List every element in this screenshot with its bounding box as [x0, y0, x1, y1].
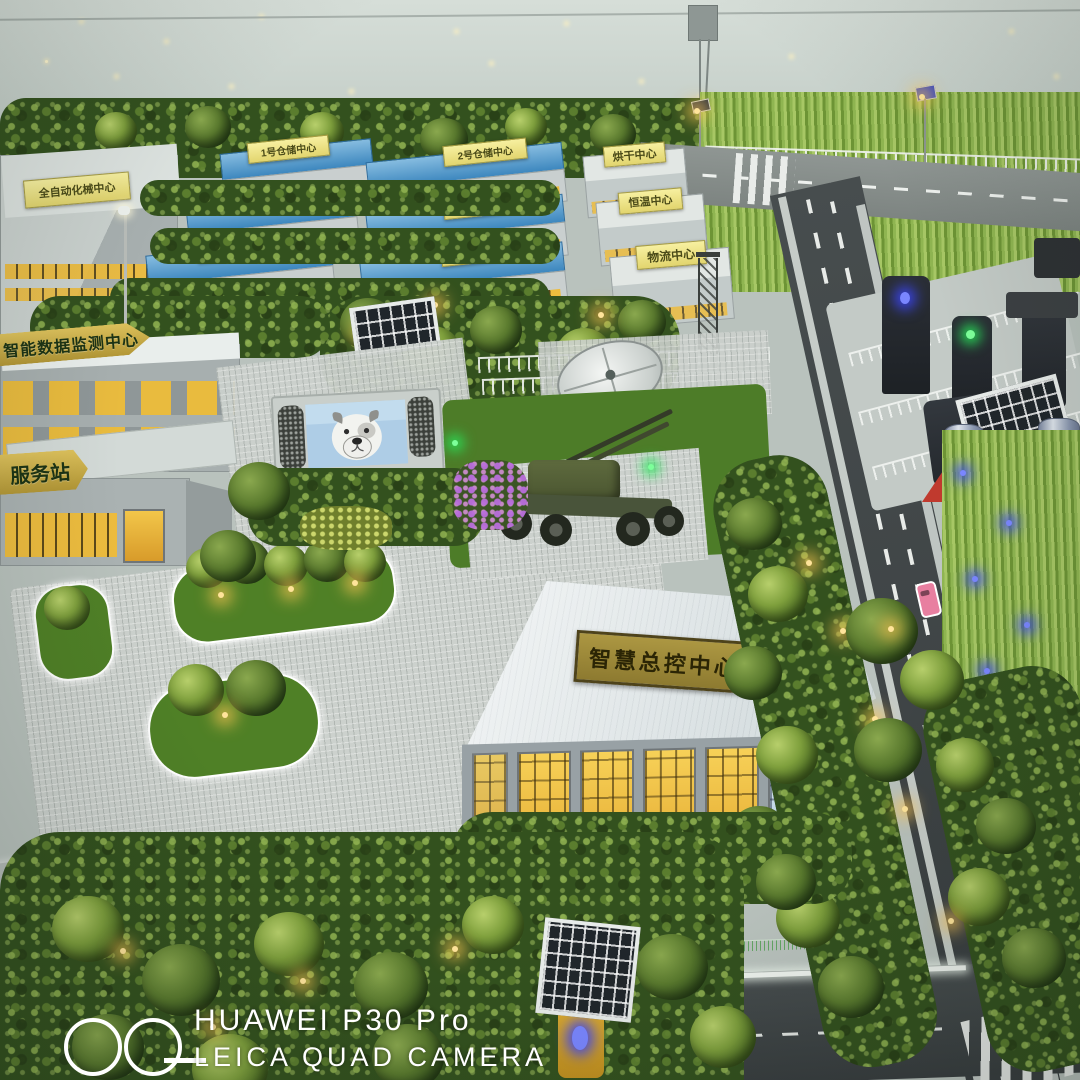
wall-bracket	[688, 5, 718, 41]
tree	[846, 598, 918, 664]
streetlight-glow	[948, 918, 954, 924]
green-light	[452, 440, 458, 446]
glass-door	[123, 509, 165, 563]
camera-watermark: HUAWEI P30 Pro LEICA QUAD CAMERA	[60, 1004, 620, 1080]
streetlight-pole	[924, 98, 926, 172]
tree	[200, 530, 256, 582]
sign-label: 烘干中心	[612, 145, 657, 165]
tree	[936, 738, 994, 792]
garden-light	[598, 312, 604, 318]
tree	[818, 956, 884, 1018]
garden-light	[352, 580, 358, 586]
sign-label: 智慧总控中心	[588, 641, 740, 683]
streetlight-glow	[694, 108, 700, 114]
tree	[1002, 928, 1066, 988]
green-light	[648, 464, 654, 470]
tree	[185, 106, 231, 148]
gun-wheel	[540, 514, 572, 546]
sign-label: 物流中心	[646, 244, 695, 265]
garden-light	[120, 948, 126, 954]
speaker-grille-icon	[407, 396, 436, 457]
tree	[52, 896, 124, 962]
sign-label: 恒温中心	[628, 191, 673, 211]
field-blue-light	[1006, 520, 1012, 526]
tree	[226, 660, 286, 716]
sign-label: 全自动化械中心	[38, 179, 116, 202]
building-windows	[5, 513, 117, 557]
backdrop-sparkles	[45, 60, 48, 63]
gun-wheel	[654, 506, 684, 536]
tree	[264, 544, 308, 586]
field-blue-light	[1024, 622, 1030, 628]
field-blue-light	[972, 576, 978, 582]
watermark-line2: LEICA QUAD CAMERA	[194, 1042, 547, 1073]
industrial-tower	[882, 276, 930, 394]
camera-logo-icon	[64, 1018, 122, 1076]
tree	[948, 868, 1010, 926]
tree	[976, 798, 1036, 854]
tower-cap	[1006, 292, 1078, 318]
billboard-dog-image	[305, 400, 408, 469]
tree	[748, 566, 808, 622]
tree	[470, 306, 522, 354]
hedge-row	[150, 228, 560, 264]
garden-light	[300, 978, 306, 984]
hedge-row	[140, 180, 560, 216]
streetlight-glow	[902, 806, 908, 812]
garden-light	[888, 626, 894, 632]
tree	[900, 650, 964, 710]
tree	[168, 664, 224, 716]
tower-blue-light	[900, 292, 910, 304]
tree	[254, 912, 324, 976]
tree	[690, 1006, 756, 1068]
tower-antenna	[696, 252, 720, 257]
yellow-bush	[300, 506, 392, 550]
gun-wheel	[616, 512, 650, 546]
purple-flower-bed	[452, 460, 528, 530]
gun-barrel	[565, 409, 673, 465]
garden-light	[218, 592, 224, 598]
tree	[756, 854, 816, 910]
window-row	[3, 381, 235, 415]
car-windshield	[920, 590, 930, 597]
tree	[854, 718, 922, 782]
camera-logo-icon	[124, 1018, 182, 1076]
lamp-head	[118, 206, 130, 215]
tree	[756, 726, 818, 784]
tree	[228, 462, 290, 520]
tree	[462, 896, 524, 954]
sign-label: 1号仓储中心	[260, 139, 317, 160]
garden-light	[288, 586, 294, 592]
sign-label: 2号仓储中心	[457, 142, 514, 163]
tree	[95, 112, 137, 150]
lamp-pole	[124, 214, 127, 334]
streetlight-glow	[806, 560, 812, 566]
watermark-line1: HUAWEI P30 Pro	[194, 1004, 472, 1038]
scale-model-photo: 全自动化械中心 1号仓储中心 2号仓储中心 3号仓储中心 4号仓储中心 5号仓储…	[0, 0, 1080, 1080]
tree	[724, 646, 782, 700]
garden-light	[222, 712, 228, 718]
tower-green-light	[966, 330, 975, 339]
window-row	[5, 264, 167, 279]
streetlight-glow	[919, 94, 925, 100]
speaker-grille-icon	[277, 405, 306, 470]
transformer-box	[1034, 238, 1080, 278]
tree	[44, 586, 90, 630]
sign-label: 服务站	[9, 455, 71, 488]
tree	[726, 498, 782, 550]
garden-light	[452, 946, 458, 952]
service-station-sign: 服务站	[0, 449, 89, 496]
field-blue-light	[960, 470, 966, 476]
